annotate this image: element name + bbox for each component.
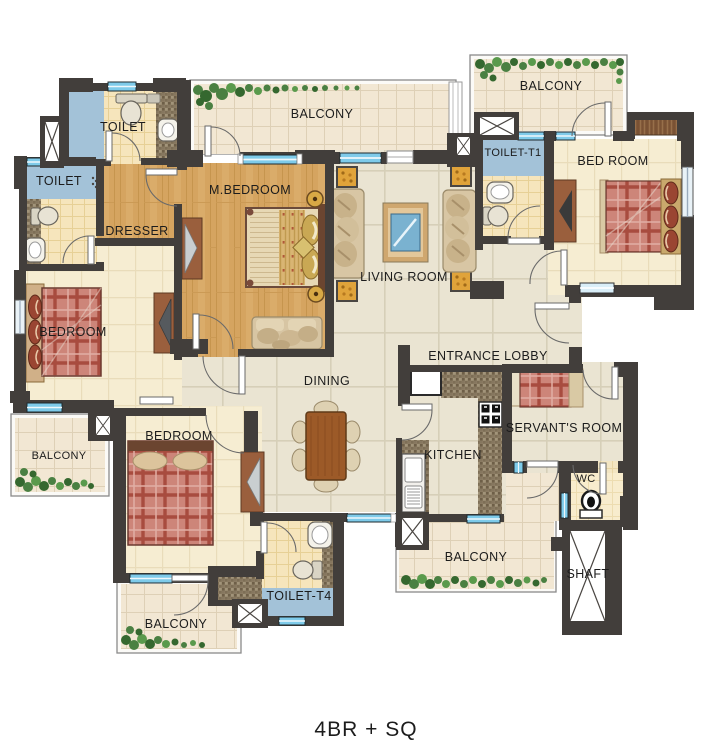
svg-text:BALCONY: BALCONY bbox=[520, 79, 583, 93]
svg-text:TOILET-T1: TOILET-T1 bbox=[485, 147, 542, 159]
svg-text:DRESSER: DRESSER bbox=[105, 224, 168, 238]
svg-text:M.BEDROOM: M.BEDROOM bbox=[209, 183, 291, 197]
svg-text:SHAFT: SHAFT bbox=[567, 567, 610, 581]
svg-text:4BR + SQ: 4BR + SQ bbox=[314, 718, 417, 741]
svg-text:KITCHEN: KITCHEN bbox=[424, 448, 482, 462]
svg-text:BEDROOM: BEDROOM bbox=[145, 429, 212, 443]
svg-text:DINING: DINING bbox=[304, 374, 350, 388]
svg-text:BALCONY: BALCONY bbox=[445, 550, 508, 564]
svg-text:BEDROOM: BEDROOM bbox=[39, 325, 106, 339]
svg-text:TOILET: TOILET bbox=[100, 120, 146, 134]
svg-text:BED ROOM: BED ROOM bbox=[577, 154, 648, 168]
svg-text:TOILET-T4: TOILET-T4 bbox=[266, 589, 331, 603]
svg-text:TOILET: TOILET bbox=[36, 174, 82, 188]
svg-text:BALCONY: BALCONY bbox=[145, 617, 208, 631]
svg-text:BALCONY: BALCONY bbox=[291, 107, 354, 121]
svg-text:BALCONY: BALCONY bbox=[32, 450, 87, 462]
svg-text:WC: WC bbox=[577, 473, 596, 485]
svg-text:LIVING ROOM: LIVING ROOM bbox=[360, 270, 448, 284]
svg-text:ENTRANCE LOBBY: ENTRANCE LOBBY bbox=[428, 349, 548, 363]
svg-text:SERVANT'S ROOM: SERVANT'S ROOM bbox=[506, 421, 623, 435]
